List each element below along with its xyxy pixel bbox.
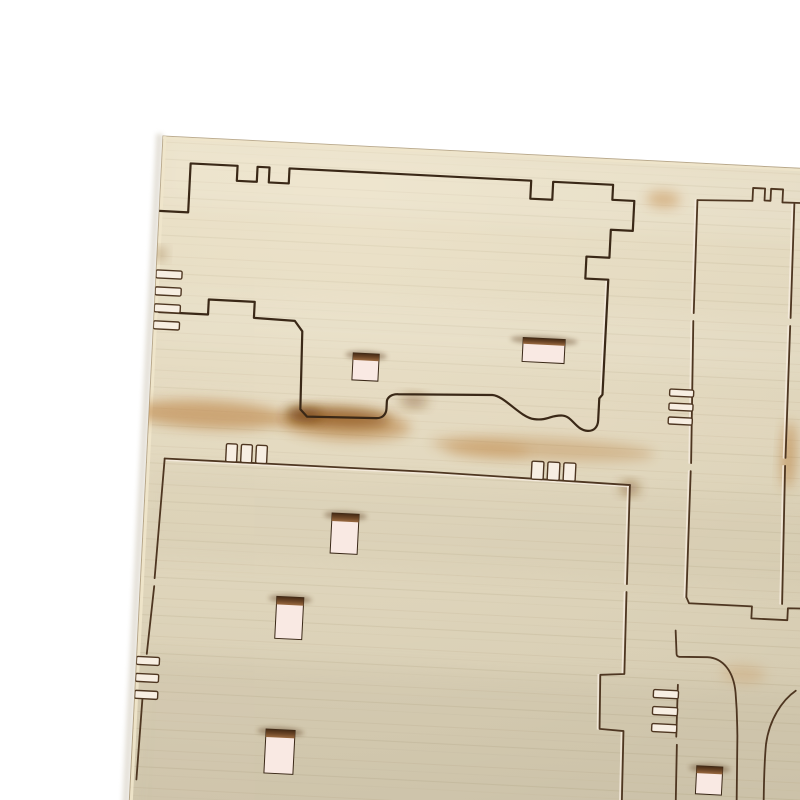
tab-slot-cutout xyxy=(136,656,159,665)
hole-scorched-lip xyxy=(266,729,295,738)
hole-scorched-lip xyxy=(332,513,359,522)
tab-slot-cutout xyxy=(241,444,253,463)
tab-slot-cutout xyxy=(668,417,692,425)
tab-slot-cutout xyxy=(256,445,268,464)
photo-stage: Close-up photo of a light birch plywood … xyxy=(0,0,800,800)
tab-slot-cutout xyxy=(547,462,560,481)
tab-slot-cutout xyxy=(563,463,576,482)
tab-slot-cutout xyxy=(653,690,678,699)
laser-cut-sheet-photo xyxy=(0,0,800,800)
tab-slot-cutout xyxy=(135,690,158,699)
tab-slot-cutout xyxy=(669,403,693,411)
tab-slot-cutout xyxy=(155,287,181,296)
hole-scorched-lip xyxy=(353,353,379,361)
tab-slot-cutout xyxy=(154,304,180,313)
tab-slot-cutout xyxy=(153,321,179,330)
tab-slot-cutout xyxy=(531,461,544,480)
tab-slot-cutout xyxy=(669,389,693,397)
tab-slot-cutout xyxy=(226,444,238,463)
tab-slot-cutout xyxy=(651,723,676,732)
tab-slot-cutout xyxy=(652,707,677,716)
plywood-sheet xyxy=(109,133,800,800)
tab-slot-cutout xyxy=(156,270,182,279)
product-photo: Close-up photo of a light birch plywood … xyxy=(0,0,800,800)
hole-scorched-lip xyxy=(696,766,722,775)
hole-scorched-lip xyxy=(276,596,303,605)
tab-slot-cutout xyxy=(135,673,158,682)
